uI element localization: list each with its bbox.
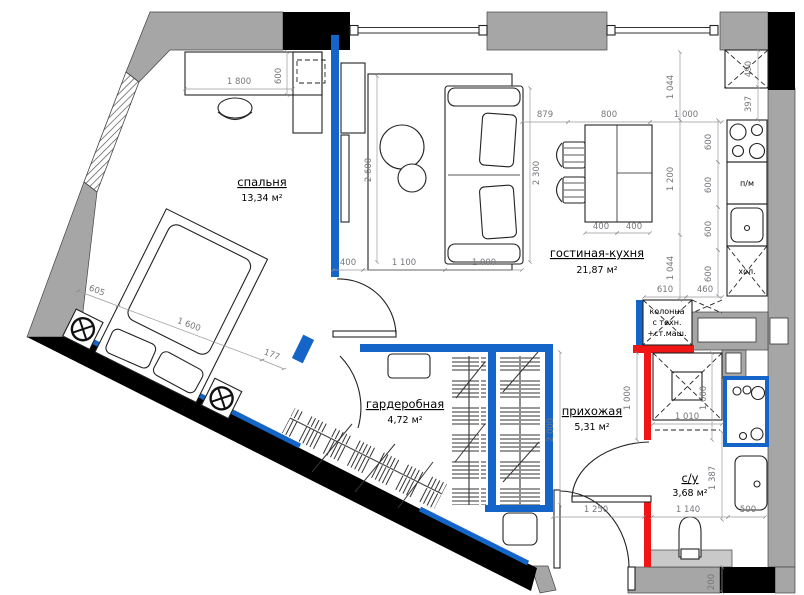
sofa xyxy=(445,86,523,264)
wall-bottom-b xyxy=(775,567,795,593)
dim-col-2: 1 200 xyxy=(666,167,676,191)
dining-chair-2 xyxy=(557,177,586,203)
dim-column-w: 610 xyxy=(657,285,673,295)
dim-col-1: 1 044 xyxy=(666,75,676,99)
wardrobe-name: гардеробная xyxy=(366,397,444,411)
bathtub xyxy=(735,456,767,510)
door-bedroom xyxy=(333,279,396,337)
tv-panel xyxy=(341,135,349,222)
dim-bottom-2: 1 140 xyxy=(676,505,700,515)
dim-sofa-length: 2 300 xyxy=(532,161,542,185)
wardrobe-interior xyxy=(282,352,540,509)
dim-hall-width: 1 000 xyxy=(623,386,633,410)
partition-wardrobe-mid xyxy=(488,352,496,505)
dim-table-half-1: 400 xyxy=(593,222,609,232)
wall-top-right xyxy=(720,12,768,50)
dim-living-2: 1 100 xyxy=(392,258,416,268)
dim-col-3: 1 044 xyxy=(666,256,676,280)
bedroom-area: 13,34 м² xyxy=(241,193,282,204)
dim-shaft-h: 1 000 xyxy=(699,386,709,410)
wall-niche-2 xyxy=(770,318,788,344)
dim-shaft-1: 490 xyxy=(744,61,754,77)
dim-table-half-2: 400 xyxy=(626,222,642,232)
dining-table xyxy=(585,125,652,222)
red-wall-h xyxy=(633,345,694,353)
column-top xyxy=(283,12,350,50)
tv-cabinet xyxy=(341,63,365,133)
window-top-1 xyxy=(350,26,487,36)
bedroom-name: спальня xyxy=(237,175,286,189)
bed xyxy=(63,193,300,419)
dim-unit-4: 600 xyxy=(704,266,714,282)
dim-bath-height: 1 387 xyxy=(708,466,718,490)
partition-wardrobe-stub xyxy=(292,335,314,364)
dim-shaft-w: 1 010 xyxy=(675,412,699,422)
wall-top-mid xyxy=(487,12,607,50)
column-top-right xyxy=(768,12,795,90)
bath-area: 3,68 м² xyxy=(672,488,707,499)
floor-plan: п/м хол. колонна с техн. +ст.маш. xyxy=(0,0,804,595)
tech-column-label-1: колонна xyxy=(649,307,684,316)
desk xyxy=(185,52,322,95)
hall-area: 5,31 м² xyxy=(574,422,609,433)
kitchen-fixtures: п/м хол. xyxy=(725,50,768,296)
dim-shaft-2: 397 xyxy=(744,96,754,112)
dim-hall-height: 2 000 xyxy=(546,418,556,442)
dim-unit-3: 600 xyxy=(704,221,714,237)
dim-desk-depth: 600 xyxy=(274,68,284,84)
wardrobe-bench xyxy=(388,354,430,378)
partition-wardrobe-top xyxy=(360,344,553,352)
tech-column-label-3: +ст.маш. xyxy=(647,329,686,338)
sofa-pillow-1 xyxy=(479,113,517,167)
dim-unit-2: 600 xyxy=(704,177,714,193)
hall-name: прихожая xyxy=(562,404,622,418)
wardrobe-area: 4,72 м² xyxy=(387,415,422,426)
kitchen-sink xyxy=(727,204,767,246)
living-furniture xyxy=(368,74,652,270)
sofa-pillow-2 xyxy=(479,185,517,239)
coffee-table-large xyxy=(380,125,424,169)
dim-rug-height: 2 600 xyxy=(364,158,374,182)
window-diagonal xyxy=(84,72,139,192)
window-top-2 xyxy=(607,26,718,36)
living-area: 21,87 м² xyxy=(576,265,617,276)
dim-bottom-3: 500 xyxy=(740,505,756,515)
dim-top-1: 879 xyxy=(537,110,553,120)
dim-bed-1: 605 xyxy=(87,284,106,299)
washing-machine xyxy=(725,378,767,445)
red-wall-v-lower xyxy=(644,497,651,567)
dim-bottom-1: 1 250 xyxy=(584,505,608,515)
dim-bed-3: 177 xyxy=(262,348,281,363)
living-name: гостиная-кухня xyxy=(550,246,644,260)
dim-desk-width: 1 800 xyxy=(227,77,251,87)
dining-chair-1 xyxy=(557,142,586,168)
dim-unit-1: 600 xyxy=(704,134,714,150)
floor-plan-canvas: п/м хол. колонна с техн. +ст.маш. xyxy=(0,0,804,595)
dim-column-gap: 460 xyxy=(697,285,713,295)
desk-chair xyxy=(218,98,252,118)
bath-name: с/у xyxy=(681,471,698,485)
fridge-label: хол. xyxy=(738,267,755,276)
dim-wall-offset: 200 xyxy=(707,574,717,590)
stove xyxy=(727,120,767,162)
column-bottom xyxy=(720,567,775,593)
red-wall-v-upper xyxy=(644,353,651,440)
bath-pillar-niche xyxy=(726,353,741,373)
wall-niche-1 xyxy=(698,318,756,342)
dim-top-2: 800 xyxy=(601,110,617,120)
dishwasher-label: п/м xyxy=(740,179,754,188)
dim-living-1: 400 xyxy=(340,258,356,268)
hall-pouf xyxy=(503,513,537,545)
partition-wardrobe-bottom xyxy=(485,505,553,512)
tech-column-label-2: с техн. xyxy=(652,318,681,327)
toilet xyxy=(679,517,701,559)
fridge: хол. xyxy=(727,246,767,296)
partition-column-edge xyxy=(636,300,643,345)
door-wardrobe xyxy=(340,356,361,428)
door-bath xyxy=(572,442,651,502)
coffee-table-small xyxy=(398,164,426,192)
partition-bedroom xyxy=(331,35,339,277)
dim-living-3: 1 000 xyxy=(472,258,496,268)
dim-top-3: 1 000 xyxy=(674,110,698,120)
